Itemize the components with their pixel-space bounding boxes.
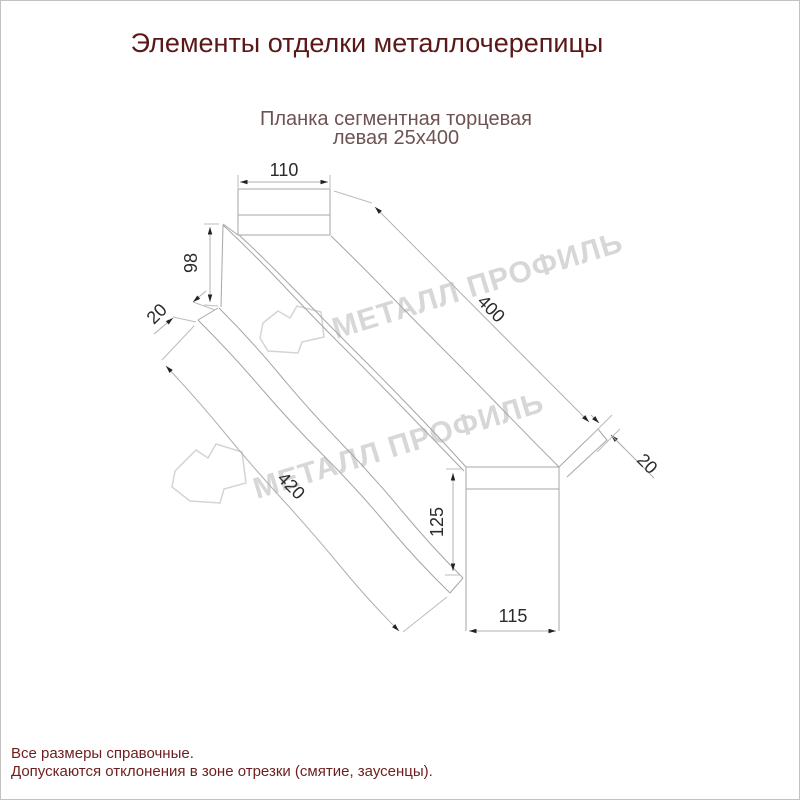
metall-profil-logo-icon [260, 306, 324, 353]
web-back-edge [221, 225, 223, 307]
watermark-text-upper: МЕТАЛЛ ПРОФИЛЬ [328, 226, 627, 346]
extension-lines [162, 175, 620, 632]
dim-label-115: 115 [499, 606, 528, 626]
front-flap [559, 429, 607, 477]
footer-note-line1: Все размеры справочные. [11, 745, 789, 763]
footer-note-line2: Допускаются отклонения в зоне отрезки (с… [11, 763, 789, 781]
metall-profil-logo-icon [172, 444, 246, 503]
technical-drawing: МЕТАЛЛ ПРОФИЛЬ МЕТАЛЛ ПРОФИЛЬ [1, 1, 800, 800]
dim-line-20-back-a [193, 291, 206, 302]
catalog-page: Элементы отделки металлочерепицы Планка … [0, 0, 800, 800]
dim-label-98: 98 [181, 253, 201, 273]
back-face [238, 189, 330, 235]
dim-label-110: 110 [270, 160, 299, 180]
dimension-labels: 110 98 20 400 20 420 125 115 [143, 160, 662, 626]
watermark-lower: МЕТАЛЛ ПРОФИЛЬ [172, 386, 548, 506]
watermark-upper: МЕТАЛЛ ПРОФИЛЬ [260, 226, 627, 353]
hem-front-cap [450, 578, 463, 593]
web-top-edge [223, 225, 464, 471]
footer-notes: Все размеры справочные. Допускаются откл… [11, 745, 789, 781]
dim-label-125: 125 [427, 507, 447, 537]
web-back-top-edge [223, 224, 238, 235]
dim-label-20-front: 20 [633, 450, 661, 478]
dim-line-20-front-a [591, 415, 599, 423]
